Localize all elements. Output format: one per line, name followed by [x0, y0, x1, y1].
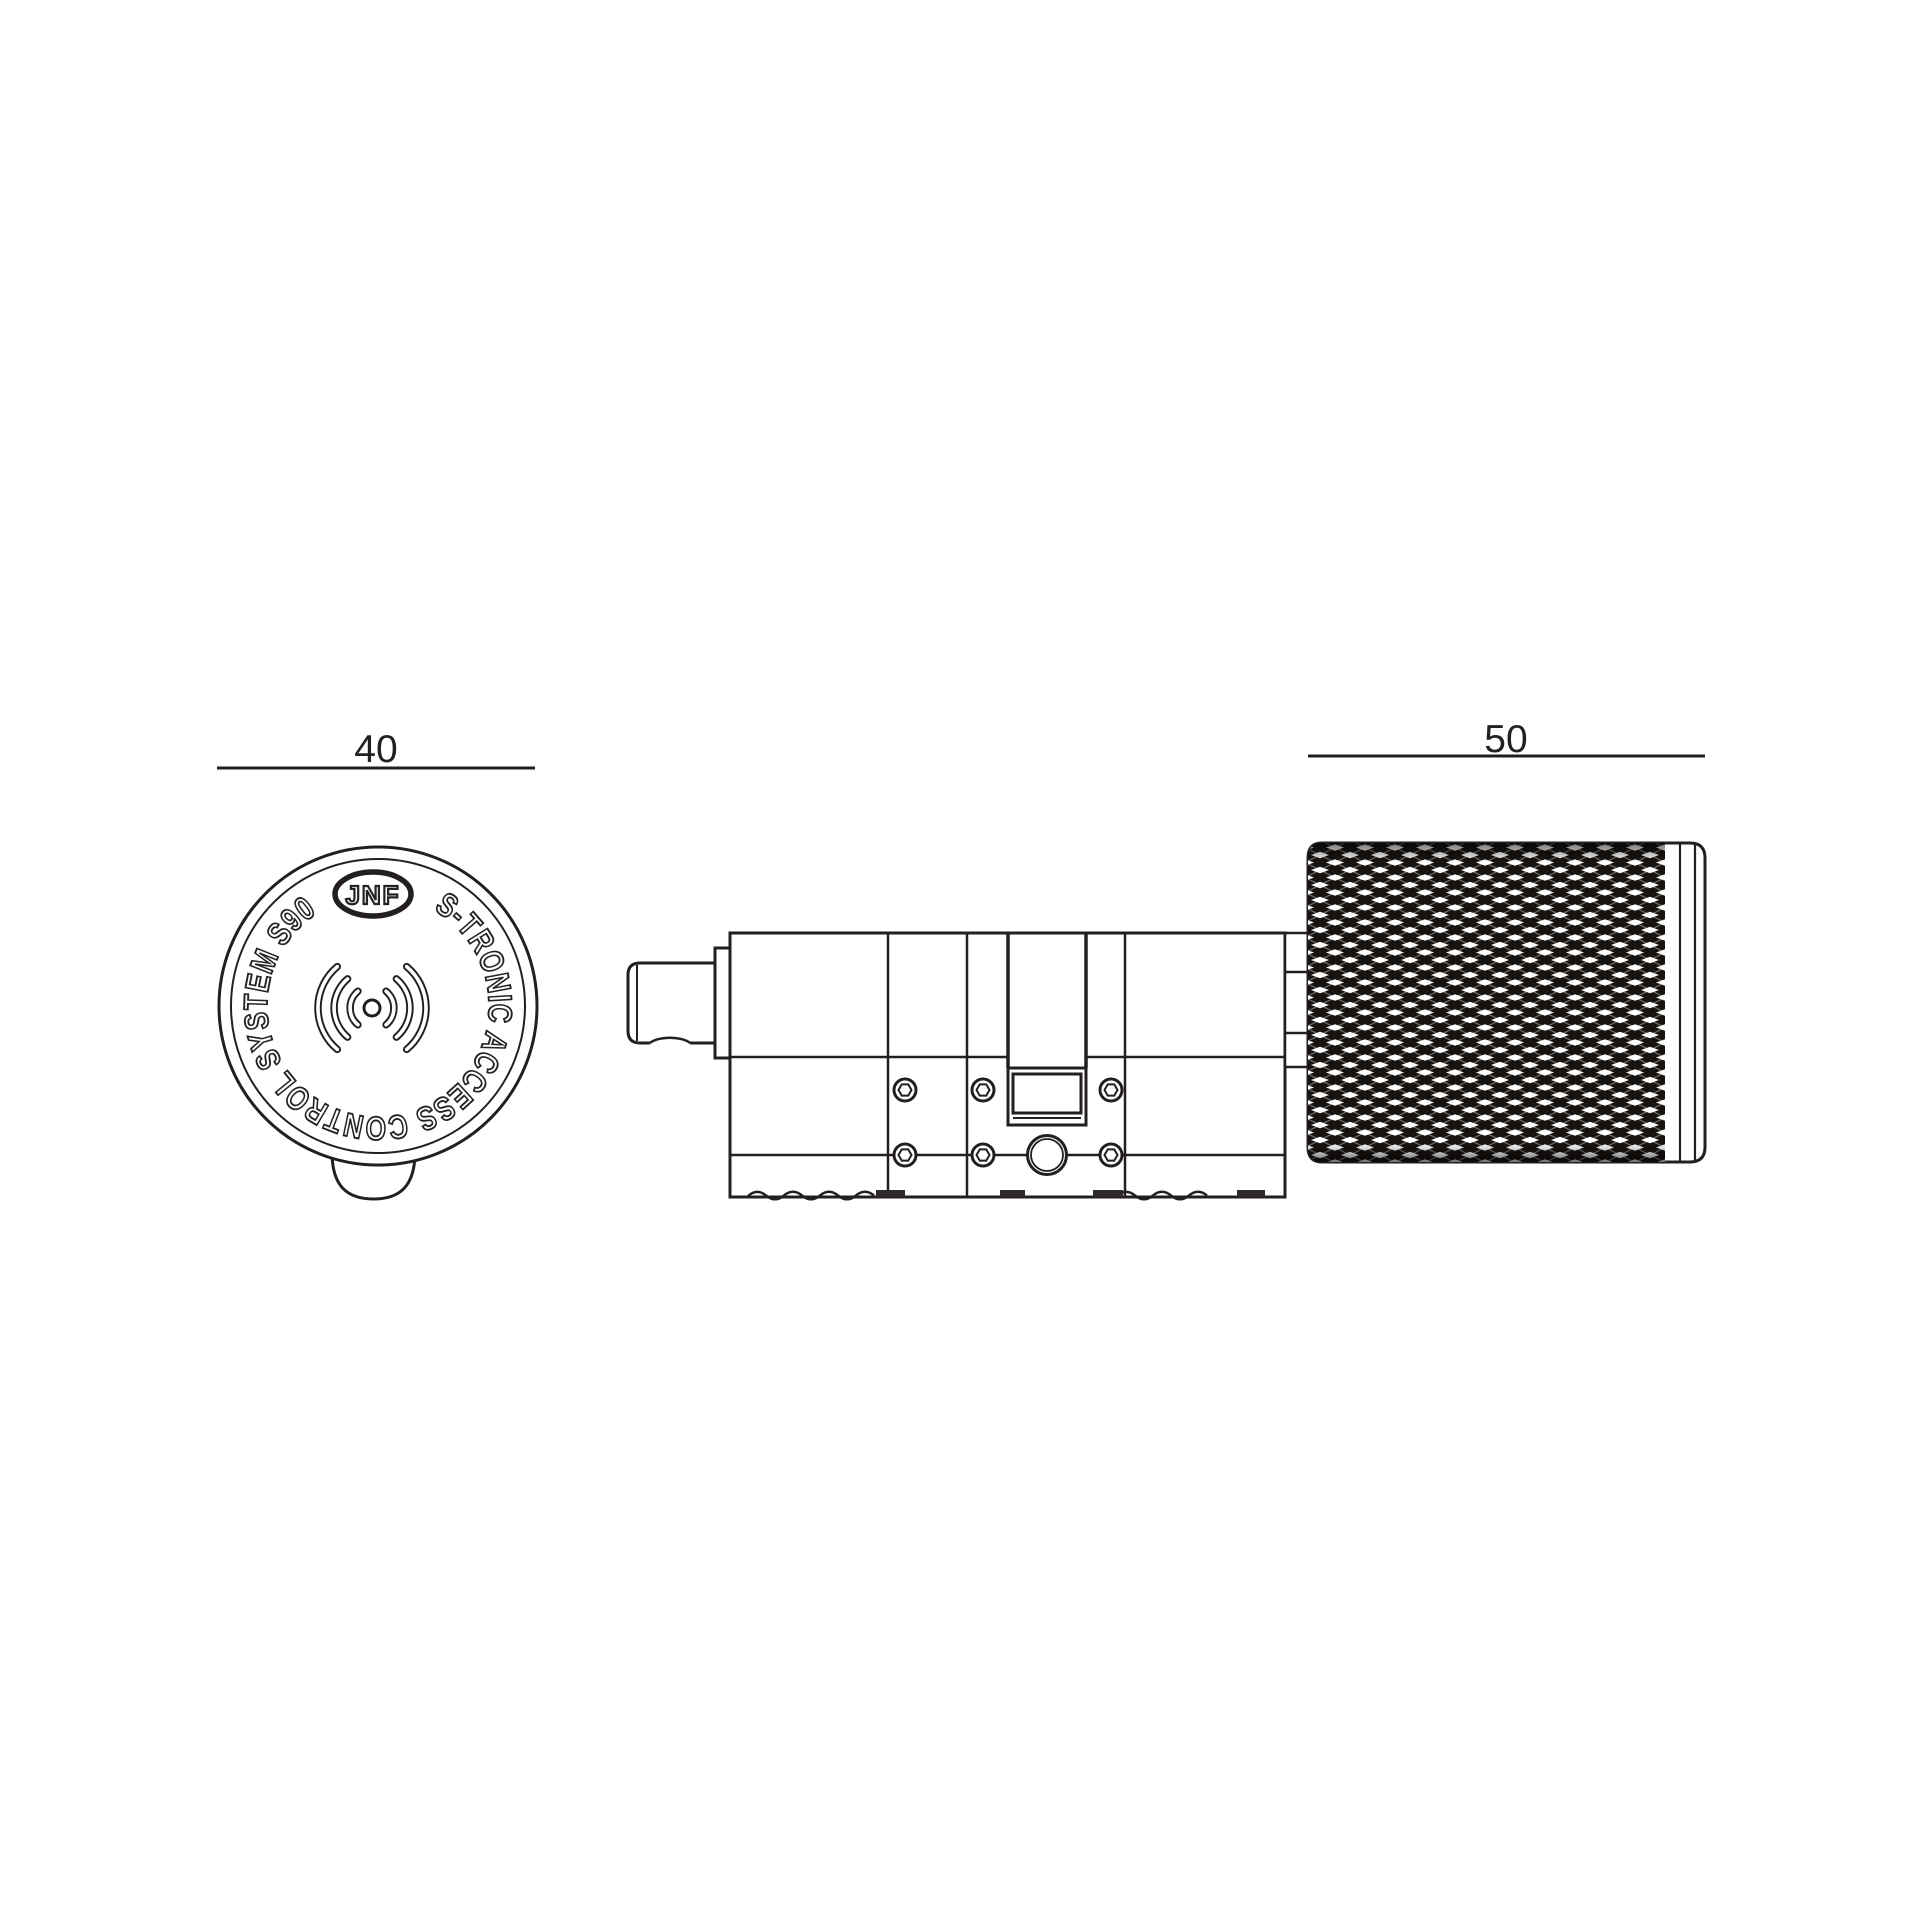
dimension-40: 40: [217, 728, 535, 771]
screw-hole: [1100, 1079, 1122, 1101]
screw-hole: [894, 1079, 916, 1101]
knurled-knob: [1308, 843, 1705, 1162]
screw-hole: [1100, 1144, 1122, 1166]
knob-neck-outline: [1285, 933, 1308, 1067]
spindle-collar: [715, 948, 730, 1058]
fixing-screw-hole: [1028, 1136, 1067, 1175]
signal-center-dot: [364, 1000, 380, 1016]
retaining-clip: [1008, 1068, 1086, 1125]
cylinder-body: [730, 933, 1285, 1199]
dimension-50: 50: [1308, 718, 1705, 761]
side-view-cylinder: [628, 843, 1705, 1199]
screw-hole: [972, 1079, 994, 1101]
front-view-knob-face: JNF S-TRONIC ACCESS CONTROL SYSTEM S90: [219, 847, 537, 1199]
retaining-clip-inner: [1013, 1074, 1081, 1113]
knurl-shading: [1308, 843, 1665, 1162]
screw-hole: [894, 1144, 916, 1166]
drawing-svg: 40 50 JNF S-TRONIC ACCESS CONTROL SYSTEM…: [0, 0, 1920, 1920]
cam-spindle-body: [628, 963, 715, 1043]
technical-drawing-sheet: 40 50 JNF S-TRONIC ACCESS CONTROL SYSTEM…: [0, 0, 1920, 1920]
jnf-logo-text: JNF: [345, 880, 400, 910]
jnf-logo: JNF: [335, 872, 411, 916]
dimension-40-label: 40: [354, 728, 397, 771]
knob-neck: [1285, 933, 1308, 1067]
screw-hole: [972, 1144, 994, 1166]
cam-spindle: [628, 963, 715, 1046]
